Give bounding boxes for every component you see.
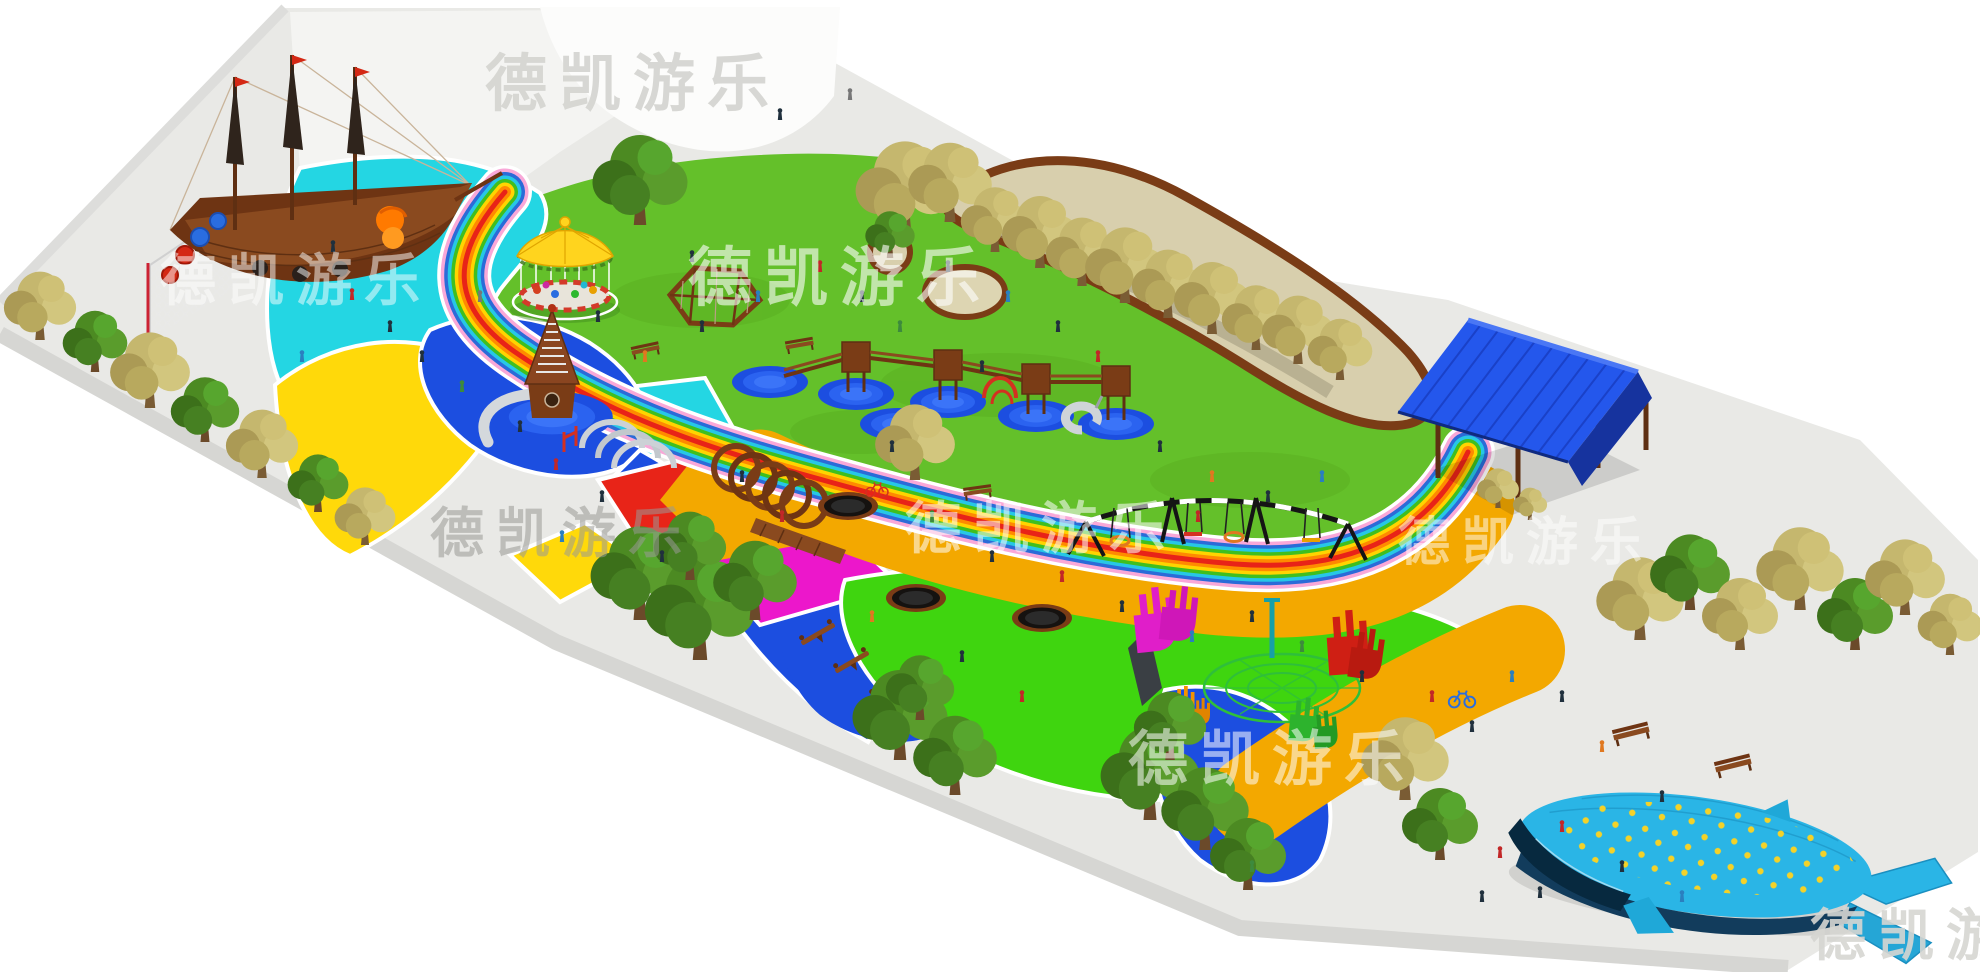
person <box>643 350 648 362</box>
person <box>1196 510 1201 522</box>
person <box>780 510 785 522</box>
watermark-text: 德凯游乐 <box>905 497 1177 562</box>
person <box>1300 640 1305 652</box>
person <box>388 320 393 332</box>
person <box>600 490 605 502</box>
person <box>1510 670 1515 682</box>
person <box>1158 440 1163 452</box>
watermark-text: 德凯游乐 <box>1128 725 1416 795</box>
person <box>848 88 853 100</box>
person <box>1096 350 1101 362</box>
person <box>1560 690 1565 702</box>
person <box>1538 886 1543 898</box>
person <box>1266 490 1271 502</box>
person <box>1120 600 1125 612</box>
person <box>960 650 965 662</box>
person <box>1498 846 1503 858</box>
person <box>1320 470 1325 482</box>
watermark-text: 德凯游乐 <box>688 242 992 316</box>
person <box>1480 890 1485 902</box>
watermark-text: 德凯游乐 <box>1398 513 1654 573</box>
person <box>1020 690 1025 702</box>
person <box>1560 820 1565 832</box>
person <box>518 420 523 432</box>
person <box>870 610 875 622</box>
person <box>1210 470 1215 482</box>
watermark-text: 德凯游乐 <box>160 249 432 314</box>
person <box>1600 740 1605 752</box>
person <box>1680 890 1685 902</box>
person <box>890 440 895 452</box>
person <box>700 320 705 332</box>
person <box>478 290 483 302</box>
scene-canvas: 德凯游乐 德凯游乐 德凯游乐 德凯游乐 德凯游乐 德凯游乐 德凯游乐 德凯游乐 <box>0 0 1980 972</box>
person <box>1360 670 1365 682</box>
person <box>898 320 903 332</box>
person <box>420 350 425 362</box>
watermark-text: 德凯游乐 <box>430 502 694 565</box>
watermark-text: 德凯游乐 <box>1810 904 1980 969</box>
person <box>1006 290 1011 302</box>
person <box>1660 790 1665 802</box>
person <box>1250 860 1255 872</box>
person <box>1060 570 1065 582</box>
person <box>1190 630 1195 642</box>
person <box>1620 860 1625 872</box>
watermark-text: 德凯游乐 <box>485 47 781 120</box>
person <box>1250 610 1255 622</box>
person <box>1056 320 1061 332</box>
person <box>980 360 985 372</box>
person <box>300 350 305 362</box>
person <box>596 310 601 322</box>
person <box>1430 690 1435 702</box>
person <box>460 380 465 392</box>
person <box>740 470 745 482</box>
person <box>1470 720 1475 732</box>
person <box>554 458 559 470</box>
playground-render: 德凯游乐 德凯游乐 德凯游乐 德凯游乐 德凯游乐 德凯游乐 德凯游乐 德凯游乐 <box>0 0 1980 972</box>
